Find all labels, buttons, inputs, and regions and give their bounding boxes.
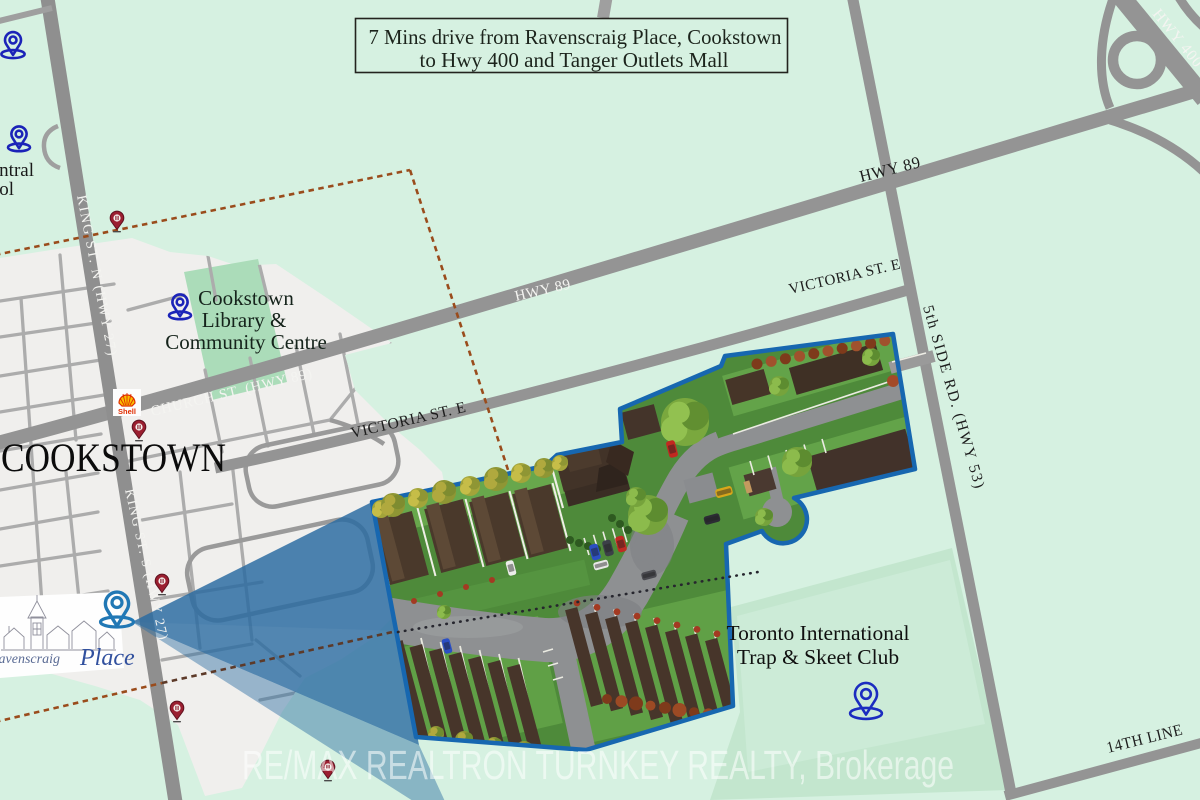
svg-text:Trap & Skeet Club: Trap & Skeet Club bbox=[737, 645, 899, 669]
svg-text:Toronto International: Toronto International bbox=[727, 621, 910, 645]
svg-text:Central: Central bbox=[0, 160, 34, 181]
svg-text:7 Mins drive from Ravenscraig: 7 Mins drive from Ravenscraig Place, Coo… bbox=[369, 25, 782, 49]
svg-text:Ravenscraig: Ravenscraig bbox=[0, 652, 60, 667]
svg-text:Shell: Shell bbox=[118, 407, 136, 416]
svg-text:RE/MAX REALTRON TURNKEY REALTY: RE/MAX REALTRON TURNKEY REALTY, Brokerag… bbox=[242, 742, 954, 788]
svg-text:COOKSTOWN: COOKSTOWN bbox=[1, 435, 226, 480]
svg-text:Cookstown: Cookstown bbox=[198, 286, 294, 310]
svg-text:School: School bbox=[0, 179, 14, 200]
svg-text:Library &: Library & bbox=[202, 308, 287, 332]
svg-text:Place: Place bbox=[79, 645, 135, 671]
svg-text:Community Centre: Community Centre bbox=[165, 330, 327, 354]
svg-text:to Hwy 400 and Tanger Outlets: to Hwy 400 and Tanger Outlets Mall bbox=[420, 48, 729, 72]
